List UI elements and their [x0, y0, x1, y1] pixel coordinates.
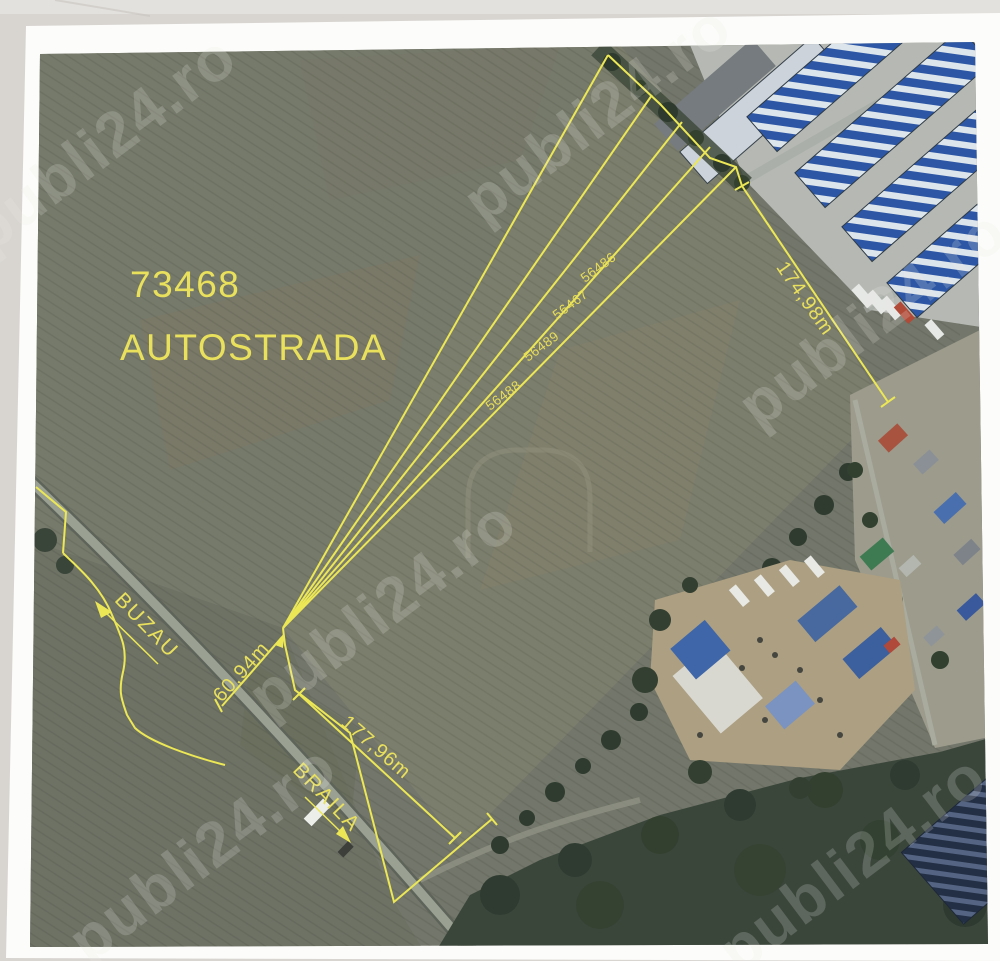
listing-photo-page: 73468 AUTOSTRADA 56486 56467 56489 56488… — [0, 0, 1000, 961]
plot-name-label: AUTOSTRADA — [120, 327, 387, 368]
scanned-aerial-photo: 73468 AUTOSTRADA 56486 56467 56489 56488… — [0, 0, 1000, 961]
plot-id-label: 73468 — [130, 264, 240, 305]
